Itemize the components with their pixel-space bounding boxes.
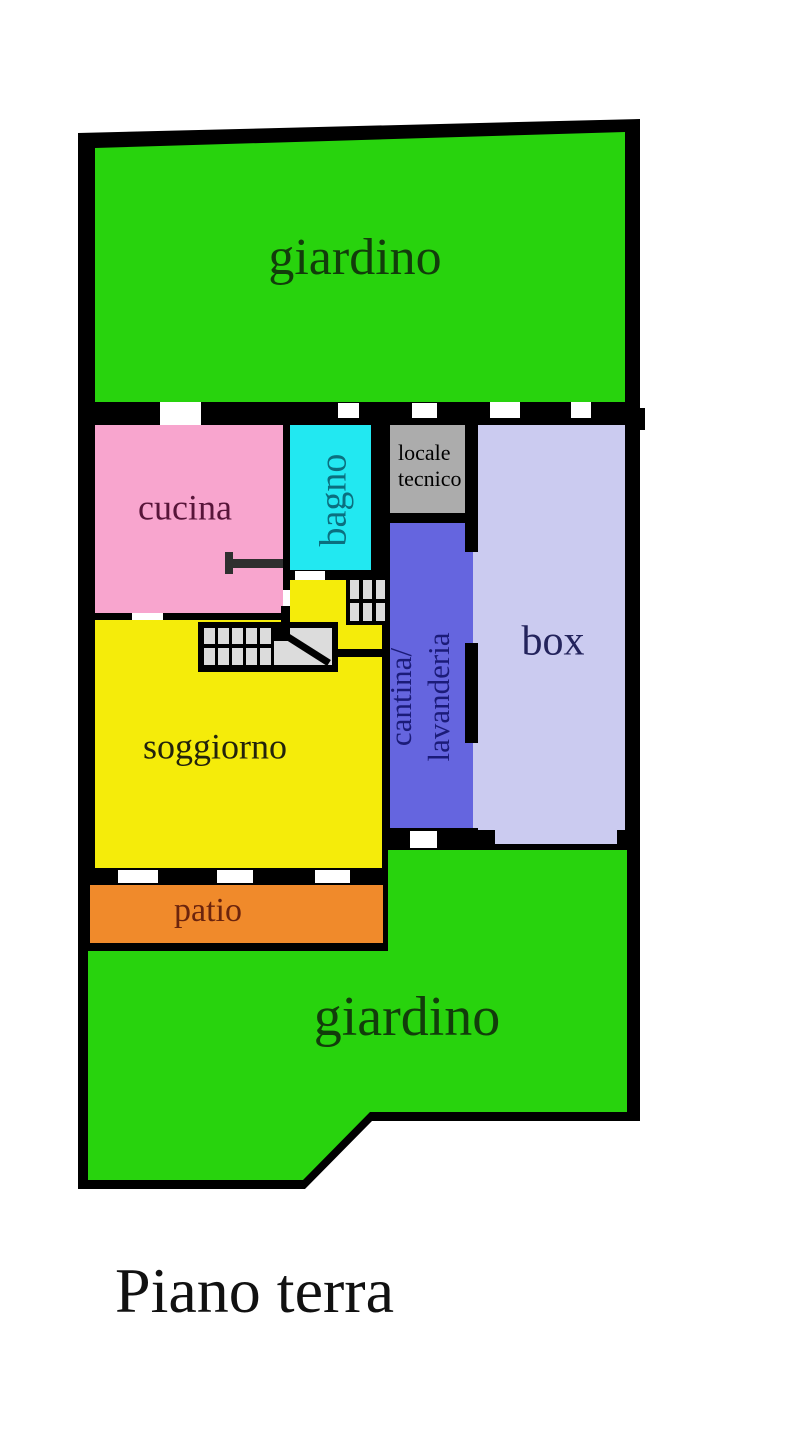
label-box: box [522, 619, 585, 665]
door-cucina-bottom [132, 613, 163, 620]
stair-tread [246, 648, 257, 665]
wall-stub-above-stairs [281, 606, 290, 622]
window-hatch-cell [376, 603, 385, 621]
label-garden-bottom: giardino [314, 986, 501, 1048]
label-cantina-line1: cantina/ [383, 648, 418, 747]
window-hatch-cell [350, 603, 359, 621]
stair-tread [260, 628, 271, 644]
label-bagno: bagno [313, 454, 355, 547]
door-cantina-box-1b [473, 552, 480, 643]
wall-jog-right [632, 408, 645, 430]
window-hatch-cell [363, 580, 372, 599]
label-locale-tecnico: locale tecnico [398, 440, 462, 491]
door-bagno [295, 571, 325, 580]
label-cantina-line2: lavanderia [421, 632, 456, 761]
floor-plan-svg: giardino cucina bagno locale tecnico box… [0, 0, 800, 1445]
door-cantina-box-1a [465, 552, 473, 643]
floorplan-page: giardino cucina bagno locale tecnico box… [0, 0, 800, 1445]
label-cucina: cucina [138, 487, 232, 527]
stair-tread [232, 628, 243, 644]
cucina-partition-horizontal [228, 559, 283, 568]
door-cantina-box-2b [473, 743, 480, 828]
wall-opening-patio-2 [217, 870, 253, 883]
label-locale-tecnico-line2: tecnico [398, 466, 462, 491]
wall-opening-2 [338, 403, 359, 418]
wall-opening-patio-1 [118, 870, 158, 883]
room-box-door-recess [495, 830, 617, 844]
stairs [198, 622, 338, 672]
stair-tread [246, 628, 257, 644]
door-cantina-box-2a [465, 743, 473, 828]
stair-tread [204, 628, 215, 644]
label-garden-top: giardino [268, 229, 441, 286]
wall-opening-3 [412, 403, 437, 418]
wall-opening-patio-3 [315, 870, 350, 883]
stair-tread [218, 648, 229, 665]
wall-stub-right-of-stairs [332, 649, 390, 657]
window-hatch [346, 576, 387, 625]
wall-opening-1 [160, 402, 201, 425]
window-hatch-cell [363, 603, 372, 621]
label-locale-tecnico-line1: locale [398, 440, 451, 465]
label-patio: patio [174, 892, 242, 929]
page-title: Piano terra [115, 1255, 394, 1326]
wall-opening-5 [571, 402, 591, 418]
wall-opening-4 [490, 402, 520, 418]
window-hatch-cell [350, 580, 359, 599]
stair-tread [232, 648, 243, 665]
label-soggiorno: soggiorno [143, 726, 287, 766]
stair-tread [218, 628, 229, 644]
window-hatch-cell [376, 580, 385, 599]
door-cucina-right [283, 590, 290, 607]
door-cantina-garden [410, 831, 437, 848]
stair-tread [204, 648, 215, 665]
stair-tread [260, 648, 271, 665]
